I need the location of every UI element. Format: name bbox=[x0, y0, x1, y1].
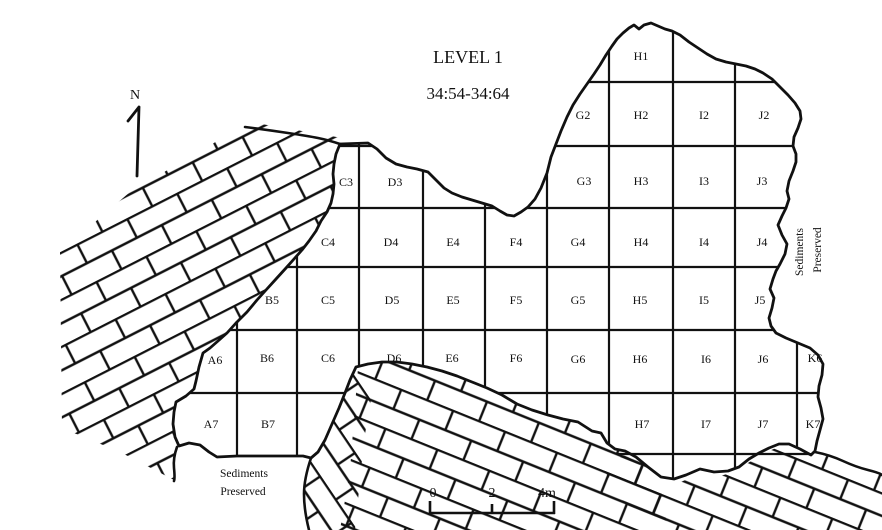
grid-cell-label-B7: B7 bbox=[261, 417, 275, 431]
grid-cell-label-A6: A6 bbox=[208, 353, 223, 367]
grid-cell-label-I5: I5 bbox=[699, 293, 709, 307]
grid-cell-label-I2: I2 bbox=[699, 108, 709, 122]
grid-cell-label-G4: G4 bbox=[571, 235, 586, 249]
grid-cell-label-H4: H4 bbox=[634, 235, 649, 249]
grid-cell-label-D6: D6 bbox=[387, 351, 402, 365]
grid-cell-label-I6: I6 bbox=[701, 352, 711, 366]
sediments-bottom-line2: Preserved bbox=[220, 486, 266, 498]
grid-cell-label-J5: J5 bbox=[755, 293, 766, 307]
grid-cell-label-I3: I3 bbox=[699, 174, 709, 188]
excavation-plan-page: H1G2H2I2J2C3D3G3H3I3J3C4D4E4F4G4H4I4J4B5… bbox=[0, 0, 882, 530]
north-arrow-line bbox=[128, 107, 139, 176]
grid-cell-label-H1: H1 bbox=[634, 49, 649, 63]
scale-label-0: 0 bbox=[430, 486, 437, 501]
grid-cell-label-C5: C5 bbox=[321, 293, 335, 307]
grid-cell-label-G5: G5 bbox=[571, 293, 586, 307]
scale-label-4m: 4m bbox=[538, 486, 556, 501]
grid-cell-label-I7: I7 bbox=[701, 417, 711, 431]
plan-subtitle: 34:54-34:64 bbox=[426, 84, 510, 103]
grid-cell-label-F6: F6 bbox=[510, 351, 523, 365]
grid-cell-label-C4: C4 bbox=[321, 235, 335, 249]
grid-cell-label-H7: H7 bbox=[635, 417, 650, 431]
grid-cell-label-B5: B5 bbox=[265, 293, 279, 307]
site-plan-svg: H1G2H2I2J2C3D3G3H3I3J3C4D4E4F4G4H4I4J4B5… bbox=[0, 0, 882, 530]
grid-cell-label-J7: J7 bbox=[758, 417, 769, 431]
grid-cell-label-A7: A7 bbox=[204, 417, 219, 431]
sediments-right-line1: Sediments bbox=[794, 228, 806, 276]
grid-cell-label-H2: H2 bbox=[634, 108, 649, 122]
grid-cell-label-D4: D4 bbox=[384, 235, 399, 249]
sediments-note-bottom: Sediments Preserved bbox=[220, 468, 268, 498]
grid-cell-label-E5: E5 bbox=[446, 293, 459, 307]
north-label: N bbox=[130, 88, 140, 103]
grid-cell-label-C6: C6 bbox=[321, 351, 335, 365]
grid-cell-label-C3: C3 bbox=[339, 175, 353, 189]
grid-cell-label-J3: J3 bbox=[757, 174, 768, 188]
grid-cell-label-E4: E4 bbox=[446, 235, 459, 249]
grid-cell-label-G6: G6 bbox=[571, 352, 586, 366]
sediments-bottom-line1: Sediments bbox=[220, 468, 268, 480]
sediments-note-right: Sediments Preserved bbox=[794, 227, 824, 276]
plan-title: LEVEL 1 bbox=[433, 47, 503, 67]
scale-label-2: 2 bbox=[489, 486, 496, 501]
grid-cell-label-K7: K7 bbox=[806, 417, 821, 431]
grid-cell-label-B6: B6 bbox=[260, 351, 274, 365]
grid-cell-label-J2: J2 bbox=[759, 108, 770, 122]
grid-cell-label-F4: F4 bbox=[510, 235, 523, 249]
grid-cell-label-D5: D5 bbox=[385, 293, 400, 307]
north-arrow: N bbox=[128, 88, 140, 176]
grid-cell-label-H3: H3 bbox=[634, 174, 649, 188]
grid-cell-label-I4: I4 bbox=[699, 235, 709, 249]
grid-cell-label-J4: J4 bbox=[757, 235, 768, 249]
grid-cell-label-H6: H6 bbox=[633, 352, 648, 366]
grid-cell-label-F5: F5 bbox=[510, 293, 523, 307]
grid-cell-label-E6: E6 bbox=[445, 351, 458, 365]
grid-cell-label-D3: D3 bbox=[388, 175, 403, 189]
grid-cell-label-G2: G2 bbox=[576, 108, 591, 122]
grid-cell-label-J6: J6 bbox=[758, 352, 769, 366]
grid-cell-label-K6: K6 bbox=[808, 351, 823, 365]
grid-cell-label-H5: H5 bbox=[633, 293, 648, 307]
grid-cell-label-G3: G3 bbox=[577, 174, 592, 188]
sediments-right-line2: Preserved bbox=[812, 227, 824, 273]
